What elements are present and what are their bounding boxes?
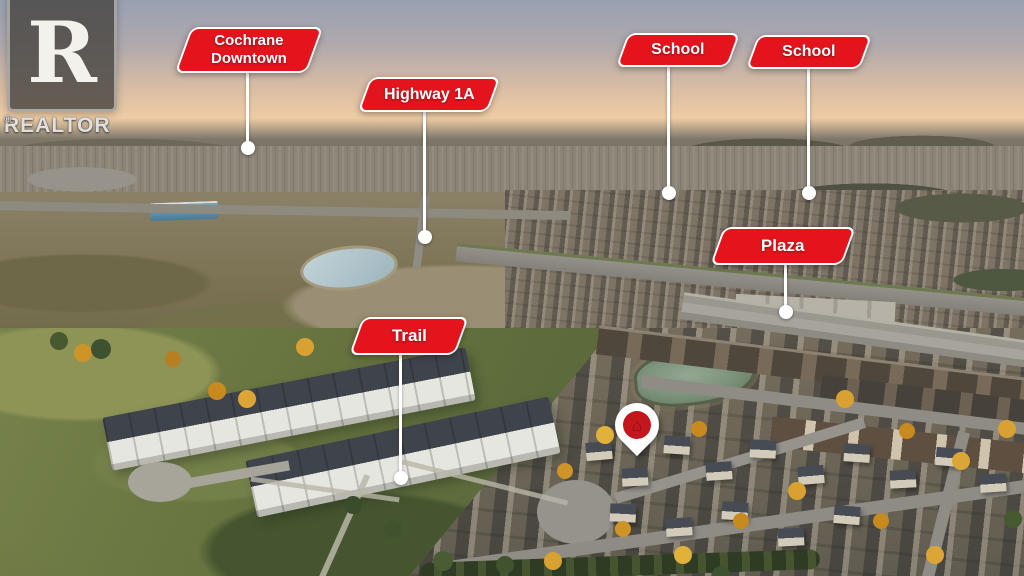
- leader-line-plaza: [784, 261, 787, 312]
- leader-line-school-west: [667, 63, 670, 193]
- house-icon: ⌂: [632, 417, 642, 434]
- label-cochrane-downtown: Cochrane Downtown: [175, 27, 324, 73]
- realtor-logo-block: R: [7, 0, 117, 112]
- house: [843, 443, 870, 463]
- leader-dot: [779, 305, 793, 319]
- label-highway-1a: Highway 1A: [358, 77, 501, 112]
- label-plaza: Plaza: [710, 227, 856, 265]
- leader-line-trail: [399, 351, 402, 478]
- house: [935, 447, 962, 467]
- label-school-east: School: [746, 35, 872, 69]
- label-text: School: [651, 40, 704, 59]
- realtor-r-icon: R: [27, 11, 97, 95]
- aerial-photo: Cochrane Downtown Highway 1A School Scho…: [0, 0, 1024, 576]
- house: [979, 473, 1006, 493]
- house: [665, 517, 692, 537]
- property-location-pin: ⌂: [606, 398, 668, 462]
- label-trail: Trail: [349, 317, 469, 355]
- house: [721, 501, 748, 521]
- leader-dot: [241, 141, 255, 155]
- leader-dot: [418, 230, 432, 244]
- label-text: School: [782, 42, 835, 61]
- label-text: Plaza: [761, 236, 804, 256]
- leader-line-cochrane-downtown: [246, 69, 249, 148]
- label-text: Highway 1A: [384, 85, 475, 104]
- realtor-watermark: R REALTOR®: [4, 0, 130, 114]
- label-school-west: School: [616, 33, 740, 67]
- house: [890, 469, 917, 488]
- house: [622, 467, 649, 486]
- pin-circle: ⌂: [623, 411, 651, 439]
- cul-de-sac: [537, 480, 615, 544]
- house: [778, 527, 805, 546]
- leader-line-highway-1a: [423, 108, 426, 237]
- house: [833, 505, 860, 525]
- house: [610, 503, 637, 522]
- label-text: Trail: [392, 326, 427, 346]
- label-text: Cochrane Downtown: [211, 32, 287, 68]
- leader-line-school-east: [807, 65, 810, 193]
- leader-dot: [394, 471, 408, 485]
- registered-trademark-symbol: ®: [4, 114, 12, 125]
- leader-dot: [662, 186, 676, 200]
- house: [797, 465, 824, 485]
- house: [705, 461, 732, 481]
- house: [750, 439, 777, 458]
- leader-dot: [802, 186, 816, 200]
